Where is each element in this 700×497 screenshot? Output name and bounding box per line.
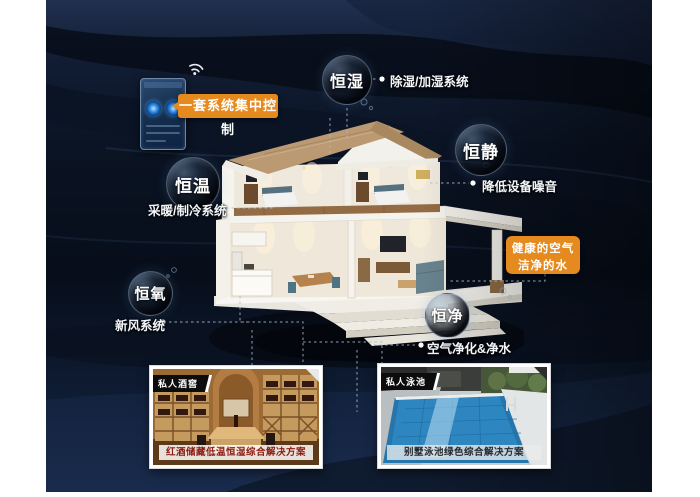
pool-caption: 别墅泳池绿色综合解决方案	[387, 445, 541, 460]
label-reduce-equipment-noise: 降低设备噪音	[482, 176, 557, 195]
phone-topbar	[144, 82, 182, 88]
wine-cellar-caption: 红酒储藏低温恒湿综合解决方案	[159, 445, 313, 460]
corner-fold	[534, 367, 547, 380]
healthy-air-water-callout: 健康的空气 洁净的水	[506, 236, 580, 274]
private-pool-card: 私人泳池 别墅泳池绿色综合解决方案	[378, 364, 550, 468]
label-heating-cooling-system: 采暖/制冷系统	[148, 200, 226, 219]
wine-cellar-card: 私人酒窖 红酒储藏低温恒湿综合解决方案	[150, 366, 322, 468]
label-air-water-purification: 空气净化&净水	[427, 338, 511, 357]
healthy-air-line: 健康的空气	[506, 241, 580, 258]
bubble-constant-humidity: 恒湿	[322, 55, 372, 105]
central-control-callout: 一套系统集中控制	[178, 94, 278, 118]
label-fresh-air-system: 新风系统	[115, 315, 165, 334]
pool-tag: 私人泳池	[381, 373, 440, 390]
label-dehumidify-humidify-system: 除湿/加湿系统	[390, 71, 468, 90]
dark-scene-background: 一套系统集中控制 健康的空气 洁净的水 恒湿 除湿/加湿系统 恒静 降低设备噪音…	[46, 0, 652, 492]
corner-fold	[306, 369, 319, 382]
phone-ui-row	[146, 140, 166, 142]
control-dial-icon	[146, 101, 161, 116]
bubble-constant-clean: 恒净	[425, 293, 470, 338]
phone-ui-row	[146, 125, 180, 127]
bubble-constant-quiet: 恒静	[455, 124, 507, 176]
wine-cellar-tag: 私人酒窖	[153, 375, 212, 392]
phone-ui-row	[146, 132, 180, 134]
infographic-canvas: 一套系统集中控制 健康的空气 洁净的水 恒湿 除湿/加湿系统 恒静 降低设备噪音…	[0, 0, 700, 497]
bubble-constant-oxygen: 恒氧	[128, 271, 173, 316]
clean-water-line: 洁净的水	[506, 258, 580, 275]
